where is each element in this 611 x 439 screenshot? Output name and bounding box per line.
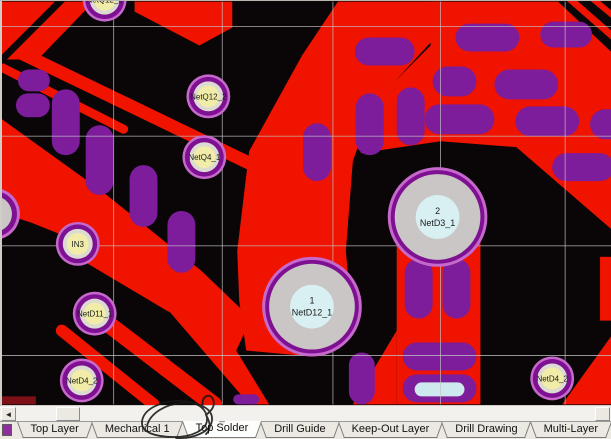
scrollbar-thumb[interactable]	[56, 407, 80, 421]
pad-net-label: NetD4_2	[66, 376, 98, 385]
pad-net-label: NetQ12_2	[86, 1, 123, 5]
pcb-canvas-viewport[interactable]: NetQ12_2NetQ12_2NetQ4_1IN3NetD11_1NetD4_…	[0, 1, 611, 405]
pcb-pad-netq12-2[interactable]: NetQ12_2	[186, 74, 230, 118]
pad-net-label: IN3	[72, 240, 85, 249]
tab-label: Multi-Layer	[544, 423, 598, 435]
tab-label: Top Solder	[196, 422, 249, 434]
tab-multi-layer[interactable]: Multi-Layer	[533, 422, 609, 438]
pcb-pad-netd3-1[interactable]: 2NetD3_1	[388, 167, 488, 267]
pcb-editor-window: NetQ12_2NetQ12_2NetQ4_1IN3NetD11_1NetD4_…	[0, 0, 611, 439]
tab-keep-out-layer[interactable]: Keep-Out Layer	[341, 422, 441, 438]
tab-drill-drawing[interactable]: Drill Drawing	[444, 422, 528, 438]
tab-label: Drill Drawing	[455, 423, 517, 435]
pcb-pad-netd4-2[interactable]: NetD4_2	[530, 356, 574, 400]
tab-mechanical-1[interactable]: Mechanical 1	[94, 422, 181, 438]
scrollbar-right-button[interactable]	[595, 407, 610, 421]
pcb-pad-netd11-1[interactable]: NetD11_1	[73, 292, 117, 336]
pad-net-label: NetD11_1	[77, 310, 113, 319]
pad-net-label: NetD12_1	[292, 308, 332, 318]
tab-top-layer[interactable]: Top Layer	[20, 422, 90, 438]
current-layer-color-swatch	[2, 424, 12, 436]
tab-drill-guide[interactable]: Drill Guide	[263, 422, 336, 438]
pad-net-label: NetQ12_2	[190, 92, 227, 101]
scrollbar-left-arrow-button[interactable]: ◄	[1, 407, 16, 421]
pad-net-label: 2	[435, 206, 440, 216]
pcb-pad-netd4-2[interactable]: NetD4_2	[60, 358, 104, 402]
tab-top-solder[interactable]: Top Solder	[185, 421, 260, 438]
tab-label: Keep-Out Layer	[352, 423, 430, 435]
pcb-pad-netq4-1[interactable]: NetQ4_1	[182, 135, 226, 179]
tab-label: Top Layer	[31, 423, 79, 435]
pcb-pad-in3[interactable]: IN3	[56, 222, 100, 266]
horizontal-scrollbar[interactable]: ◄	[0, 405, 611, 421]
pcb-pad-netd12-1[interactable]: 1NetD12_1	[262, 257, 362, 357]
pad-net-label: NetD3_1	[420, 218, 455, 228]
tab-label: Mechanical 1	[105, 423, 170, 435]
pad-net-label: 1	[309, 296, 314, 306]
pad-net-label: NetQ4_1	[188, 153, 220, 162]
pad-net-label: NetD4_2	[536, 374, 568, 383]
tab-label: Drill Guide	[274, 423, 325, 435]
layer-tab-bar: Top LayerMechanical 1Top SolderDrill Gui…	[0, 421, 611, 438]
